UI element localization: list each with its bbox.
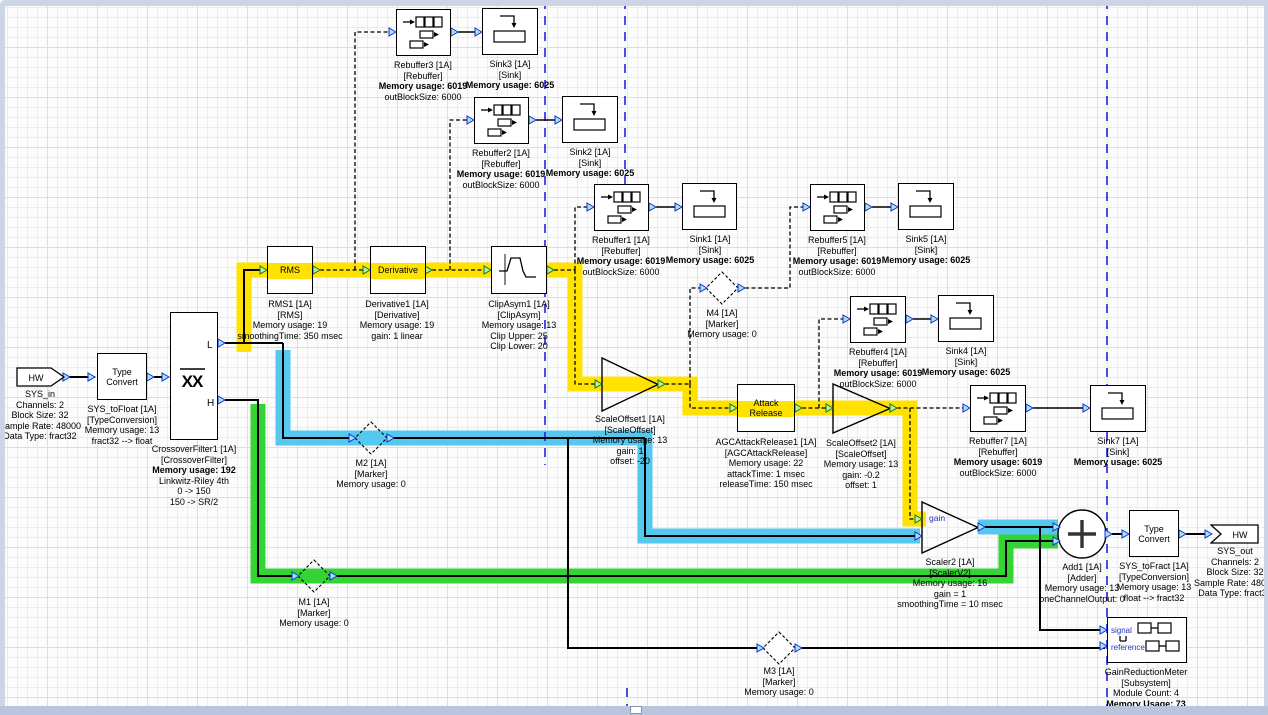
rebuffer1-label: Rebuffer1 [1A][Rebuffer]Memory usage: 60… [577, 235, 666, 277]
typeconvert-out-block[interactable]: Type Convert [1129, 510, 1179, 557]
horizontal-scrollbar[interactable] [0, 706, 1268, 715]
typeconvert-out-label: SYS_toFract [1A][TypeConversion]Memory u… [1117, 561, 1192, 603]
rebuffer4-label: Rebuffer4 [1A][Rebuffer]Memory usage: 60… [834, 347, 923, 389]
sink2-block[interactable] [562, 96, 618, 143]
rebuffer2-label: Rebuffer2 [1A][Rebuffer]Memory usage: 60… [457, 148, 546, 190]
window-top-border [0, 0, 1268, 6]
sink4-block[interactable] [938, 295, 994, 342]
derivative-label: Derivative1 [1A][Derivative]Memory usage… [360, 299, 435, 341]
sys-in-label: SYS_inChannels: 2Block Size: 32Sample Ra… [0, 389, 81, 442]
m3-label: M3 [1A][Marker]Memory usage: 0 [744, 666, 814, 698]
sys-in-hw[interactable]: HW [16, 367, 66, 387]
m4-marker[interactable] [706, 272, 738, 304]
sink5-block[interactable] [898, 183, 954, 230]
sink-icon [939, 296, 992, 340]
rebuffer-icon [971, 386, 1023, 430]
rebuffer5-label: Rebuffer5 [1A][Rebuffer]Memory usage: 60… [793, 235, 882, 277]
attackrelease-block[interactable]: Attack Release [737, 384, 795, 432]
clipasym-label: ClipAsym1 [1A][ClipAsym]Memory usage: 13… [482, 299, 557, 352]
crossover-port-l: L [207, 340, 213, 351]
typeconvert-in-block[interactable]: Type Convert [97, 353, 147, 400]
rebuffer-icon [851, 297, 903, 341]
rebuffer-icon [811, 185, 863, 229]
sink1-block[interactable] [682, 183, 737, 230]
sink-icon [563, 97, 616, 141]
window-right-border [1264, 0, 1268, 715]
sink-icon [1091, 386, 1144, 430]
rebuffer7-block[interactable] [970, 385, 1026, 432]
rebuffer1-block[interactable] [594, 184, 649, 231]
rms-text: RMS [268, 247, 312, 293]
rebuffer2-block[interactable] [474, 97, 529, 144]
rebuffer-icon [397, 10, 449, 54]
scaleoffset1-label: ScaleOffset1 [1A][ScaleOffset]Memory usa… [593, 414, 668, 467]
sys-in-hw-label: HW [29, 373, 44, 383]
rebuffer3-block[interactable] [396, 9, 451, 56]
derivative-block[interactable]: Derivative [370, 246, 426, 294]
designer-window: HW HW Type Convert XX L H RMS Derivative [0, 0, 1268, 715]
crossoverfilter-label: CrossoverFilter1 [1A][CrossoverFilter]Me… [152, 444, 237, 507]
attackrelease-text: Attack Release [738, 385, 794, 431]
derivative-text: Derivative [371, 247, 425, 293]
sink4-label: Sink4 [1A][Sink]Memory usage: 6025 [922, 346, 1011, 378]
wire-low-down [283, 343, 354, 438]
svg-text:XX: XX [182, 372, 204, 391]
crossover-icon: XX L H [171, 313, 216, 438]
sink-icon [483, 9, 536, 53]
m3-marker[interactable] [763, 632, 795, 664]
attackrelease-label: AGCAttackRelease1 [1A][AGCAttackRelease]… [715, 437, 816, 490]
scaler2-triangle[interactable] [922, 502, 978, 553]
rebuffer5-block[interactable] [810, 184, 865, 231]
crossoverfilter-block[interactable]: XX L H [170, 312, 218, 440]
cwire-to-rebuffer2 [450, 120, 468, 270]
grm-signal-label: signal [1111, 626, 1132, 635]
sink5-label: Sink5 [1A][Sink]Memory usage: 6025 [882, 234, 971, 266]
m2-label: M2 [1A][Marker]Memory usage: 0 [336, 458, 406, 490]
sink2-label: Sink2 [1A][Sink]Memory usage: 6025 [546, 147, 635, 179]
typeconvert-in-text: Type Convert [98, 354, 146, 399]
sys-out-hw[interactable]: HW [1210, 524, 1260, 544]
sink7-label: Sink7 [1A][Sink]Memory usage: 6025 [1074, 436, 1163, 468]
grm-reference-label: reference [1111, 643, 1145, 652]
rebuffer4-block[interactable] [850, 296, 906, 343]
rebuffer7-label: Rebuffer7 [1A][Rebuffer]Memory usage: 60… [954, 436, 1043, 478]
layout-canvas[interactable]: HW HW Type Convert XX L H RMS Derivative [0, 0, 1268, 715]
sink3-block[interactable] [482, 8, 538, 55]
scaleoffset2-label: ScaleOffset2 [1A][ScaleOffset]Memory usa… [824, 438, 899, 491]
rms-label: RMS1 [1A][RMS]Memory usage: 19smoothingT… [237, 299, 342, 341]
typeconvert-in-label: SYS_toFloat [1A][TypeConversion]Memory u… [85, 404, 160, 446]
sys-out-hw-label: HW [1233, 530, 1248, 540]
sink3-label: Sink3 [1A][Sink]Memory usage: 6025 [466, 59, 555, 91]
rms-block[interactable]: RMS [267, 246, 313, 294]
sink-icon [683, 184, 736, 228]
clipasym-block[interactable] [491, 246, 547, 294]
scrollbar-thumb[interactable] [630, 706, 642, 714]
scaler2-label: Scaler2 [1A][ScalerV2]Memory usage: 16ga… [897, 557, 1002, 610]
sink1-label: Sink1 [1A][Sink]Memory usage: 6025 [666, 234, 755, 266]
subsystem-icon: signal reference [1108, 618, 1185, 661]
rebuffer-icon [595, 185, 647, 229]
m1-label: M1 [1A][Marker]Memory usage: 0 [279, 597, 349, 629]
sink7-block[interactable] [1090, 385, 1146, 432]
scaler2-gain-tag: gain [929, 513, 945, 523]
m4-label: M4 [1A][Marker]Memory usage: 0 [687, 308, 757, 340]
rebuffer-icon [475, 98, 527, 142]
gainreductionmeter-block[interactable]: signal reference [1107, 617, 1187, 663]
sink-icon [899, 184, 952, 228]
rebuffer3-label: Rebuffer3 [1A][Rebuffer]Memory usage: 60… [379, 60, 468, 102]
add1-label: Add1 [1A][Adder]Memory usage: 13oneChann… [1039, 562, 1125, 604]
sys-out-label: SYS_outChannels: 2Block Size: 32Sample R… [1194, 546, 1268, 599]
window-left-border [0, 0, 5, 715]
crossover-port-h: H [207, 398, 214, 409]
gainreductionmeter-label: GainReductionMeter[Subsystem]Module Coun… [1105, 667, 1188, 709]
typeconvert-out-text: Type Convert [1130, 511, 1178, 556]
clipasym-icon [492, 247, 545, 292]
